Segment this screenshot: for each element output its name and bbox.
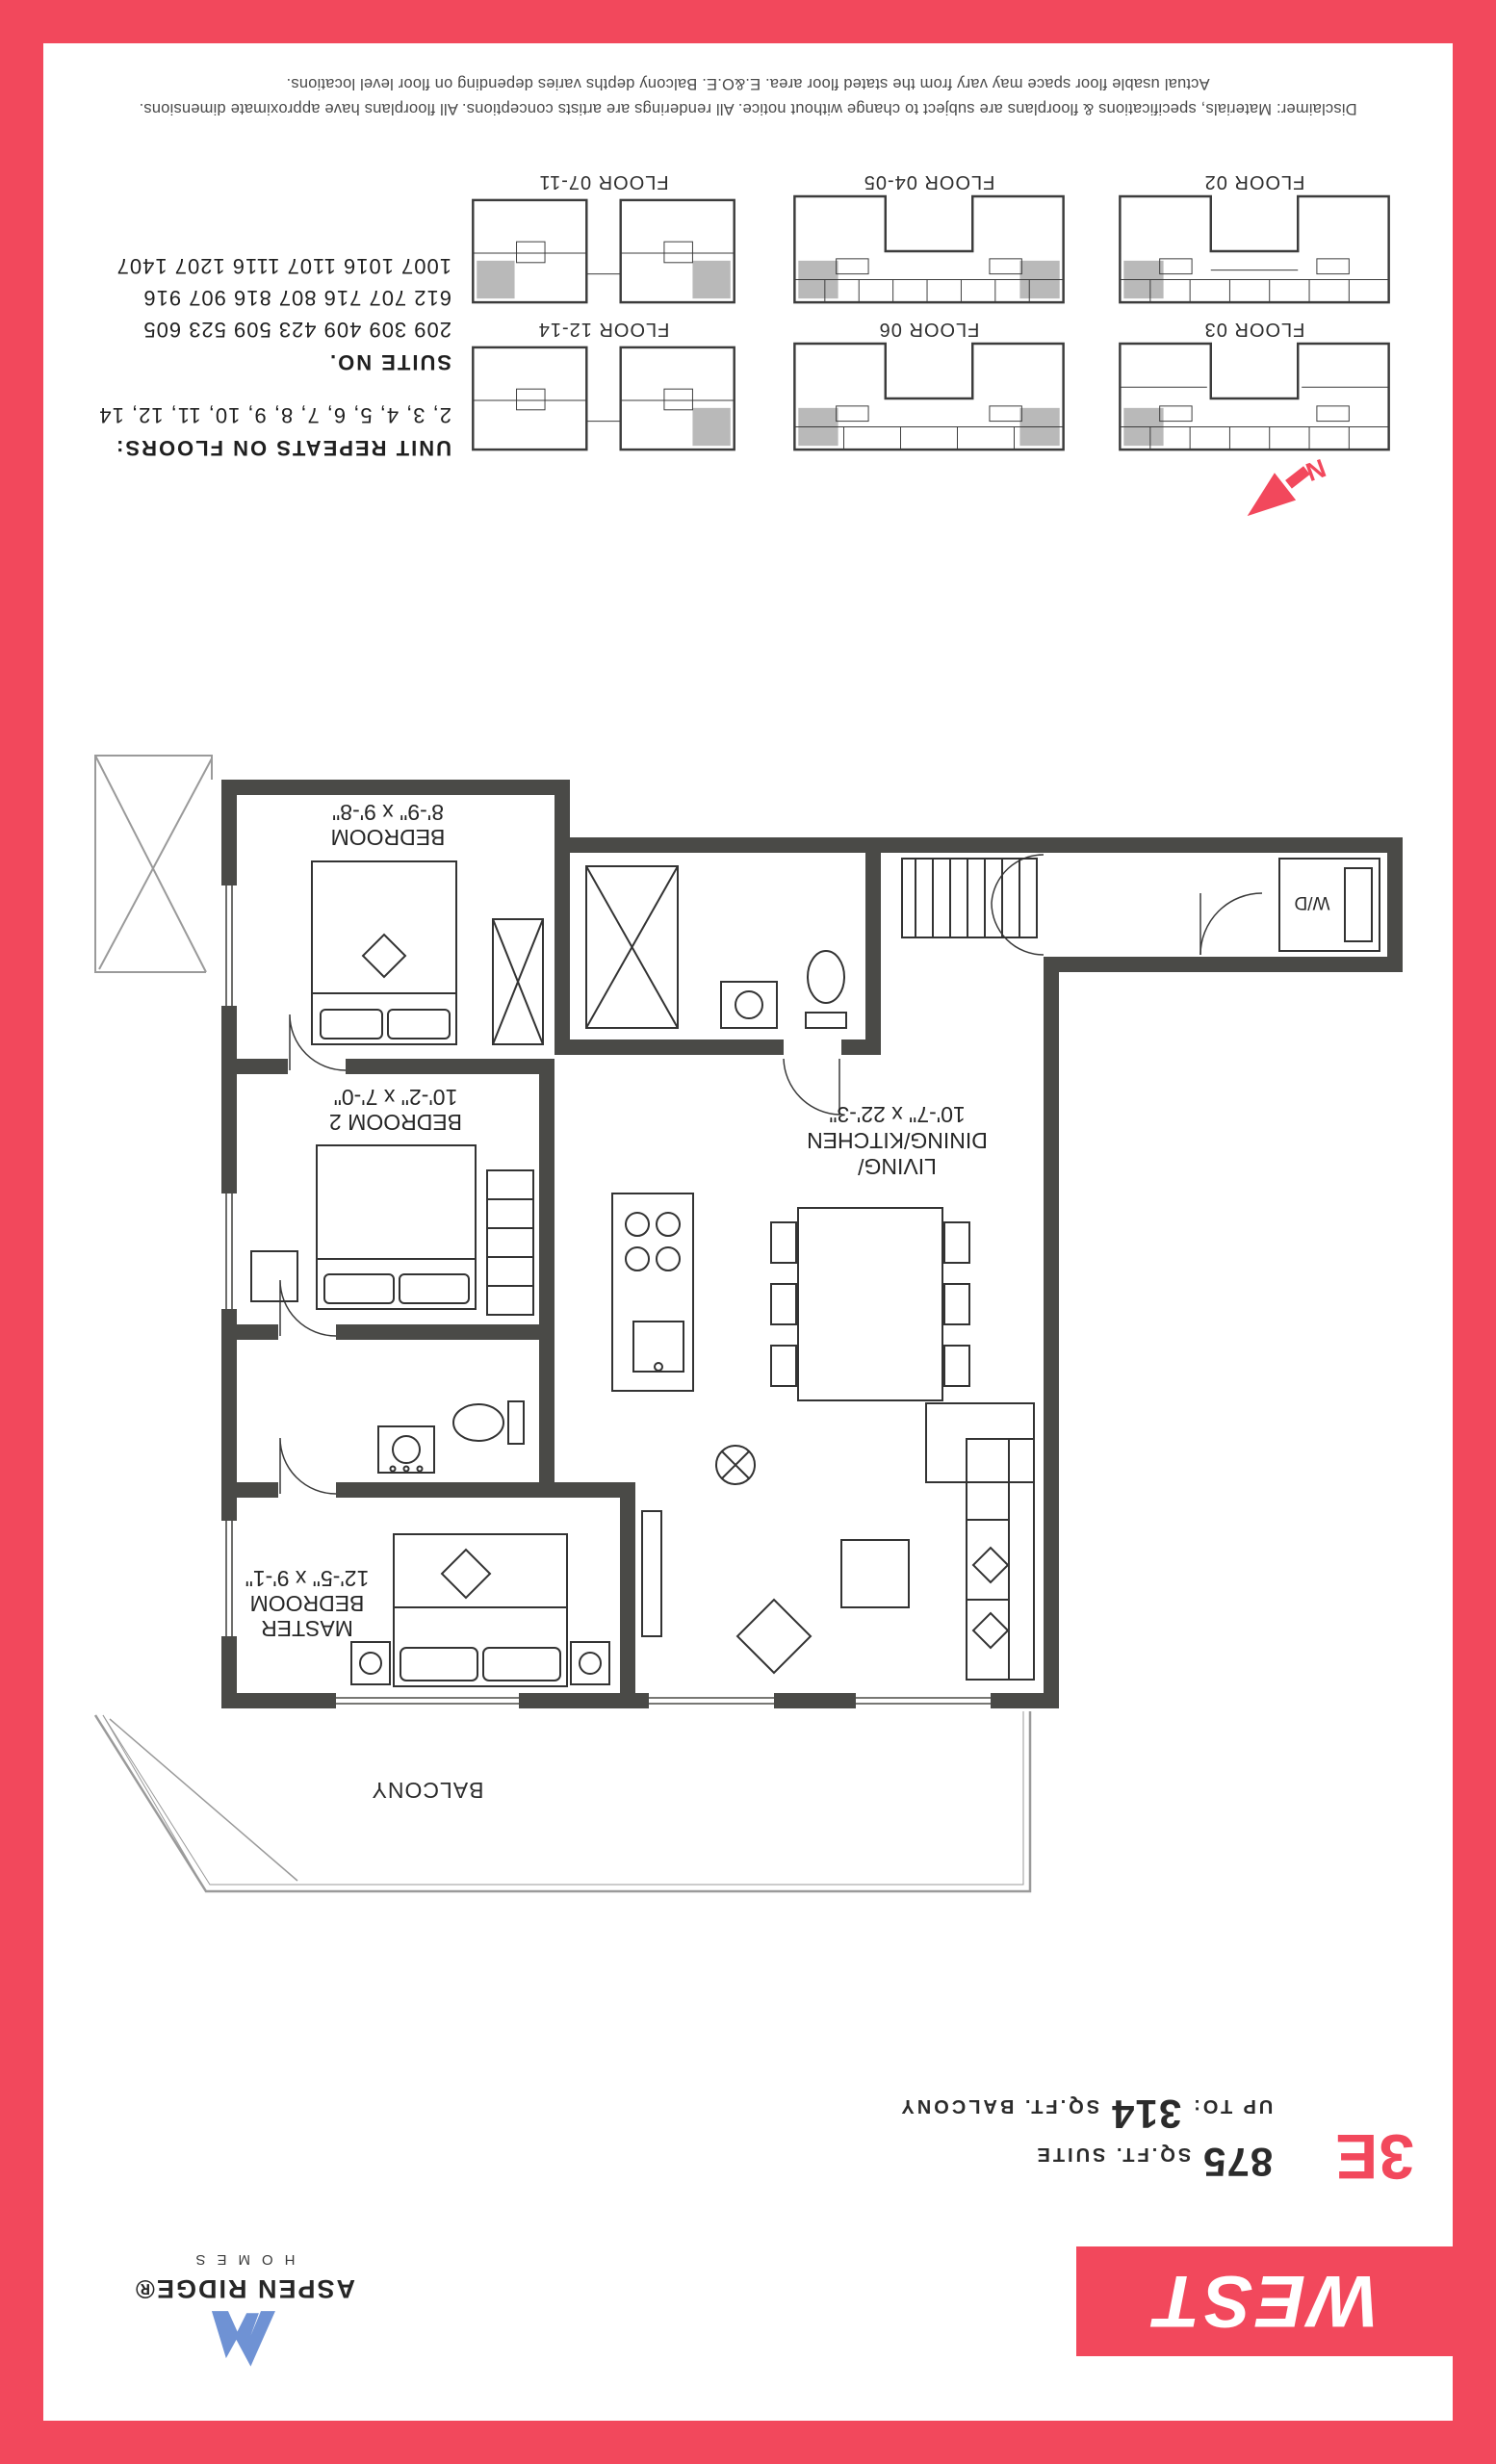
keyplan-floor-04-05 bbox=[780, 194, 1078, 308]
keyplan-label-floor-06: FLOOR 06 bbox=[879, 318, 980, 340]
keyplan-label-floor-12-14: FLOOR 12-14 bbox=[538, 318, 670, 340]
keyplan-floor-02 bbox=[1105, 194, 1404, 308]
suite-number-list: UNIT REPEATS ON FLOORS: 2, 3, 4, 5, 6, 7… bbox=[86, 250, 451, 460]
unit-repeats-floors: 2, 3, 4, 5, 6, 7, 8, 9, 10, 11, 12, 14 bbox=[86, 399, 451, 431]
balcony-outline bbox=[95, 1711, 1030, 1891]
suite-no-row-3: 1007 1016 1107 1116 1207 1407 bbox=[86, 250, 451, 282]
svg-text:10'-2" x 7'-0": 10'-2" x 7'-0" bbox=[334, 1085, 458, 1110]
north-arrow-icon: N bbox=[1217, 456, 1332, 531]
balcony-area-line: UP TO: 314 SQ.FT. BALCONY bbox=[898, 2091, 1273, 2137]
aspen-ridge-homes: HOMES bbox=[100, 2251, 389, 2268]
door-swings bbox=[280, 855, 1262, 1494]
brochure-sheet: WEST ASPEN RIDGE® HOMES 3E 875 SQ.FT. SU… bbox=[0, 0, 1496, 2464]
balcony-area-label: SQ.FT. BALCONY bbox=[898, 2094, 1099, 2117]
aspen-ridge-mark-icon bbox=[204, 2309, 285, 2373]
keyplan-column-3: FLOOR 12-14 FLOOR 07-11 bbox=[454, 161, 753, 455]
svg-text:BEDROOM 2: BEDROOM 2 bbox=[329, 1110, 462, 1135]
svg-text:12'-5" x 9'-1": 12'-5" x 9'-1" bbox=[245, 1566, 370, 1591]
svg-text:MASTER: MASTER bbox=[261, 1616, 353, 1641]
keyplan-label-floor-04-05: FLOOR 04-05 bbox=[864, 170, 995, 192]
svg-text:DINING/KITCHEN: DINING/KITCHEN bbox=[807, 1128, 988, 1153]
foyer-closet bbox=[902, 859, 1037, 937]
keyplan-label-floor-03: FLOOR 03 bbox=[1204, 318, 1305, 340]
keyplan-column-2: FLOOR 06 FLOOR 04-05 bbox=[780, 161, 1078, 455]
svg-text:10'-7" x 22'-3": 10'-7" x 22'-3" bbox=[829, 1102, 965, 1127]
living-furniture bbox=[612, 1193, 1034, 1680]
terrace-outline bbox=[95, 756, 212, 972]
disclaimer: Disclaimer: Materials, specifications & … bbox=[0, 71, 1496, 121]
balcony-area-value: 314 bbox=[1111, 2091, 1181, 2137]
disclaimer-line-1: Disclaimer: Materials, specifications & … bbox=[0, 96, 1496, 121]
suite-no-title: SUITE NO. bbox=[86, 349, 451, 374]
keyplan-label-floor-07-11: FLOOR 07-11 bbox=[538, 170, 668, 192]
svg-text:LIVING/: LIVING/ bbox=[857, 1154, 936, 1179]
west-logo-text: WEST bbox=[1151, 2260, 1379, 2344]
bedroom2-label: BEDROOM 2 10'-2" x 7'-0" bbox=[329, 1085, 462, 1135]
bedroom-furniture bbox=[312, 861, 543, 1044]
aspen-ridge-logo: ASPEN RIDGE® HOMES bbox=[100, 2251, 389, 2373]
keyplan-floor-03 bbox=[1105, 342, 1404, 455]
disclaimer-line-2: Actual usable floor space may vary from … bbox=[0, 71, 1496, 96]
keyplan-label-floor-02: FLOOR 02 bbox=[1204, 170, 1305, 192]
suite-summary: 3E 875 SQ.FT. SUITE UP TO: 314 SQ.FT. BA… bbox=[898, 2089, 1414, 2187]
balcony-area-prefix: UP TO: bbox=[1191, 2094, 1273, 2117]
suite-no-row-2: 612 707 716 807 816 907 916 bbox=[86, 282, 451, 314]
svg-text:BEDROOM: BEDROOM bbox=[331, 825, 446, 850]
wd-label: W/D bbox=[1295, 892, 1330, 912]
suite-no-row-1: 209 309 409 423 509 523 605 bbox=[86, 314, 451, 346]
floor-plan: BALCONY bbox=[90, 462, 1405, 1925]
suite-area-value: 875 bbox=[1202, 2139, 1273, 2185]
svg-text:BEDROOM: BEDROOM bbox=[250, 1591, 365, 1616]
aspen-ridge-name: ASPEN RIDGE® bbox=[100, 2273, 389, 2303]
suite-area-label: SQ.FT. SUITE bbox=[1035, 2143, 1192, 2165]
main-bath-fixtures bbox=[586, 866, 846, 1028]
keyplan-floor-07-11 bbox=[454, 194, 753, 308]
keyplan-floor-06 bbox=[780, 342, 1078, 455]
spacer bbox=[86, 374, 451, 399]
unit-repeats-title: UNIT REPEATS ON FLOORS: bbox=[86, 435, 451, 460]
keyplan-column-1: FLOOR 03 FLOOR 02 bbox=[1105, 161, 1404, 455]
bath2-fixtures bbox=[378, 1401, 524, 1473]
keyplan-floor-12-14 bbox=[454, 342, 753, 455]
suite-area-line: 875 SQ.FT. SUITE bbox=[898, 2139, 1273, 2185]
svg-text:8'-9" x 9'-8": 8'-9" x 9'-8" bbox=[332, 800, 444, 825]
walls bbox=[221, 780, 1403, 1708]
suite-areas: 875 SQ.FT. SUITE UP TO: 314 SQ.FT. BALCO… bbox=[898, 2089, 1273, 2187]
balcony-label: BALCONY bbox=[372, 1778, 484, 1803]
living-label: LIVING/ DINING/KITCHEN 10'-7" x 22'-3" bbox=[807, 1102, 988, 1179]
rotated-page: WEST ASPEN RIDGE® HOMES 3E 875 SQ.FT. SU… bbox=[0, 0, 1496, 2464]
bedroom-label: BEDROOM 8'-9" x 9'-8" bbox=[331, 800, 446, 850]
unit-code: 3E bbox=[1334, 2126, 1414, 2187]
west-logo: WEST bbox=[1076, 2246, 1454, 2356]
master-furniture bbox=[351, 1534, 609, 1686]
master-bedroom-label: MASTER BEDROOM 12'-5" x 9'-1" bbox=[245, 1566, 370, 1641]
bedroom2-furniture bbox=[251, 1145, 533, 1315]
keyplan-grid: FLOOR 03 FLOOR 02 bbox=[454, 161, 1404, 455]
